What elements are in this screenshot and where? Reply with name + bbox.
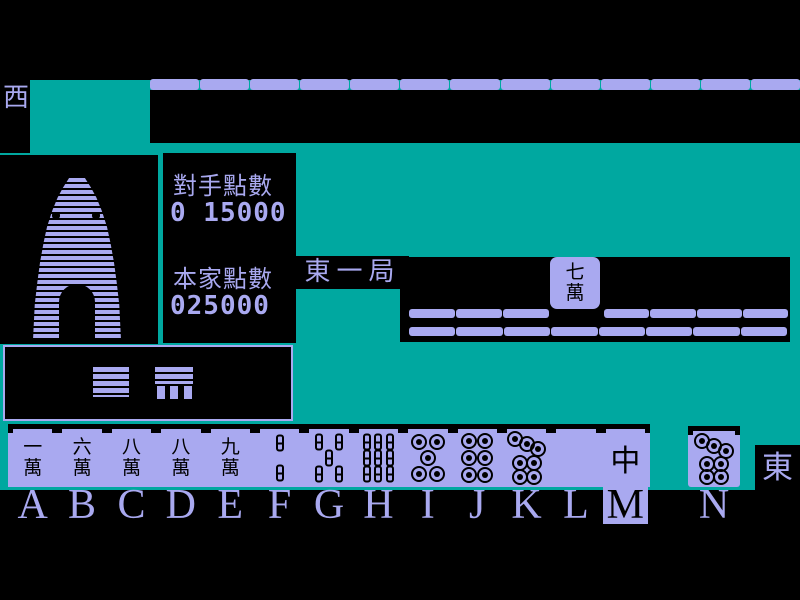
tile-face	[692, 434, 736, 484]
tile-letter-text: B	[68, 486, 96, 524]
tile-letter-text: N	[699, 486, 729, 524]
tile-letter-B[interactable]: B	[57, 486, 106, 524]
tile-letter-text: L	[563, 486, 589, 524]
counter-box	[3, 345, 293, 421]
round-indicator: 東一局	[296, 256, 409, 289]
stack-leg	[184, 386, 192, 399]
tile-letter-text: C	[117, 486, 145, 524]
opponent-wall-row	[150, 79, 800, 90]
wall-tile-edge	[697, 309, 742, 318]
tile-letter-text: E	[217, 486, 243, 524]
hand-tile-I[interactable]	[403, 429, 452, 487]
tile-letter-G[interactable]: G	[304, 486, 353, 524]
tile-face	[407, 432, 448, 484]
tile-letter-text: K	[511, 486, 541, 524]
discarded-tile-text: 七萬	[550, 257, 600, 309]
tile-letter-M[interactable]: M	[601, 486, 650, 524]
wall-tile-edge	[646, 327, 692, 336]
tower-panel	[0, 155, 158, 344]
wall-tile-edge	[503, 309, 549, 318]
tile-letter-text: D	[166, 486, 196, 524]
wall-tile-edge	[741, 327, 787, 336]
wall-tile-edge	[551, 79, 600, 90]
tile-face	[506, 432, 547, 484]
wall-tile-edge	[250, 79, 299, 90]
hand-tile-H[interactable]	[354, 429, 403, 487]
wall-tile-edge	[456, 309, 502, 318]
stick-stack-left	[93, 367, 129, 397]
player-score-label: 本家點數	[173, 259, 273, 294]
hand-tile-L[interactable]	[551, 429, 600, 487]
tile-letter-H[interactable]: H	[354, 486, 403, 524]
score-panel: 對手點數 0 15000 本家點數 025000	[163, 153, 296, 343]
wall-row-upper-left	[409, 309, 549, 318]
opponent-area-panel	[150, 90, 800, 143]
hand-tile-G[interactable]	[304, 429, 353, 487]
wall-tile-edge	[651, 79, 700, 90]
tower-window-left	[52, 212, 60, 219]
wall-tile-edge	[350, 79, 399, 90]
wall-tile-edge	[450, 79, 499, 90]
hand-tile-B[interactable]: 六萬	[57, 429, 106, 487]
wall-tile-edge	[551, 327, 597, 336]
tile-face: 八萬	[160, 432, 201, 484]
discarded-tile-7man: 七萬	[550, 257, 600, 309]
tile-letter-I[interactable]: I	[403, 486, 452, 524]
wall-tile-edge	[650, 309, 695, 318]
stack-leg	[157, 386, 165, 399]
west-seat-label: 西	[3, 84, 29, 112]
wall-tile-edge	[604, 309, 649, 318]
player-hand: 一萬六萬八萬八萬九萬中	[8, 424, 650, 487]
game-screen: 西 對手點數 0 15000 本家點數 025000 東一局 七萬 一萬六萬八萬…	[0, 0, 800, 600]
tile-letter-text: G	[314, 486, 344, 524]
tile-face	[308, 432, 349, 484]
hand-tile-F[interactable]	[255, 429, 304, 487]
tile-letter-F[interactable]: F	[255, 486, 304, 524]
opponent-score-value: 0 15000	[170, 198, 287, 228]
tile-face: 一萬	[12, 432, 53, 484]
wall-tile-edge	[150, 79, 199, 90]
east-seat-label: 東	[762, 451, 793, 485]
hand-tile-M[interactable]: 中	[601, 429, 650, 487]
wall-tile-edge	[601, 79, 650, 90]
stick-stack-right	[155, 367, 193, 384]
wall-tile-edge	[701, 79, 750, 90]
wall-tile-edge	[200, 79, 249, 90]
tile-letter-text: I	[421, 486, 435, 524]
tile-letter-E[interactable]: E	[206, 486, 255, 524]
stack-leg	[170, 386, 178, 399]
wall-tile-edge	[743, 309, 788, 318]
tile-letter-C[interactable]: C	[107, 486, 156, 524]
wall-tile-edge	[751, 79, 800, 90]
tile-letter-K[interactable]: K	[502, 486, 551, 524]
tile-face: 八萬	[111, 432, 152, 484]
hand-tile-E[interactable]: 九萬	[206, 429, 255, 487]
wall-tile-edge	[409, 309, 455, 318]
tile-letter-text: F	[268, 486, 291, 524]
drawn-tile-slot	[688, 426, 740, 487]
wall-tile-edge	[456, 327, 502, 336]
wall-tile-edge	[504, 327, 550, 336]
tile-face: 中	[605, 432, 646, 484]
tile-letter-J[interactable]: J	[452, 486, 501, 524]
wall-tile-edge	[400, 79, 449, 90]
tower-arch	[59, 284, 95, 340]
tile-letter-text: M	[603, 486, 648, 524]
opponent-score-label: 對手點數	[173, 166, 273, 201]
tile-letter-L[interactable]: L	[551, 486, 600, 524]
tile-letter-N[interactable]: N	[688, 486, 740, 524]
wall-tile-edge	[300, 79, 349, 90]
tile-letter-A[interactable]: A	[8, 486, 57, 524]
hand-tile-C[interactable]: 八萬	[107, 429, 156, 487]
tile-letter-text: J	[469, 486, 485, 524]
player-score-value: 025000	[170, 291, 270, 321]
tile-face: 九萬	[210, 432, 251, 484]
tile-face	[555, 432, 596, 484]
player-hand-tiles: 一萬六萬八萬八萬九萬中	[8, 429, 650, 487]
tile-face	[358, 432, 399, 484]
wall-tile-edge	[409, 327, 455, 336]
tower-window-right	[92, 212, 100, 219]
tile-letter-text: A	[18, 486, 48, 524]
top-black-band	[0, 0, 800, 80]
hand-tile-A[interactable]: 一萬	[8, 429, 57, 487]
hand-tile-J[interactable]	[453, 429, 502, 487]
tile-letter-D[interactable]: D	[156, 486, 205, 524]
hand-tile-D[interactable]: 八萬	[156, 429, 205, 487]
wall-tile-edge	[693, 327, 739, 336]
drawn-tile-N[interactable]	[688, 431, 740, 487]
wall-row-upper-right	[604, 309, 788, 318]
tile-face	[457, 432, 498, 484]
tile-letter-text: H	[363, 486, 393, 524]
wall-tile-edge	[501, 79, 550, 90]
tile-face: 六萬	[61, 432, 102, 484]
wall-row-lower	[409, 327, 787, 336]
tile-face	[259, 432, 300, 484]
wall-tile-edge	[599, 327, 645, 336]
hand-tile-K[interactable]	[502, 429, 551, 487]
